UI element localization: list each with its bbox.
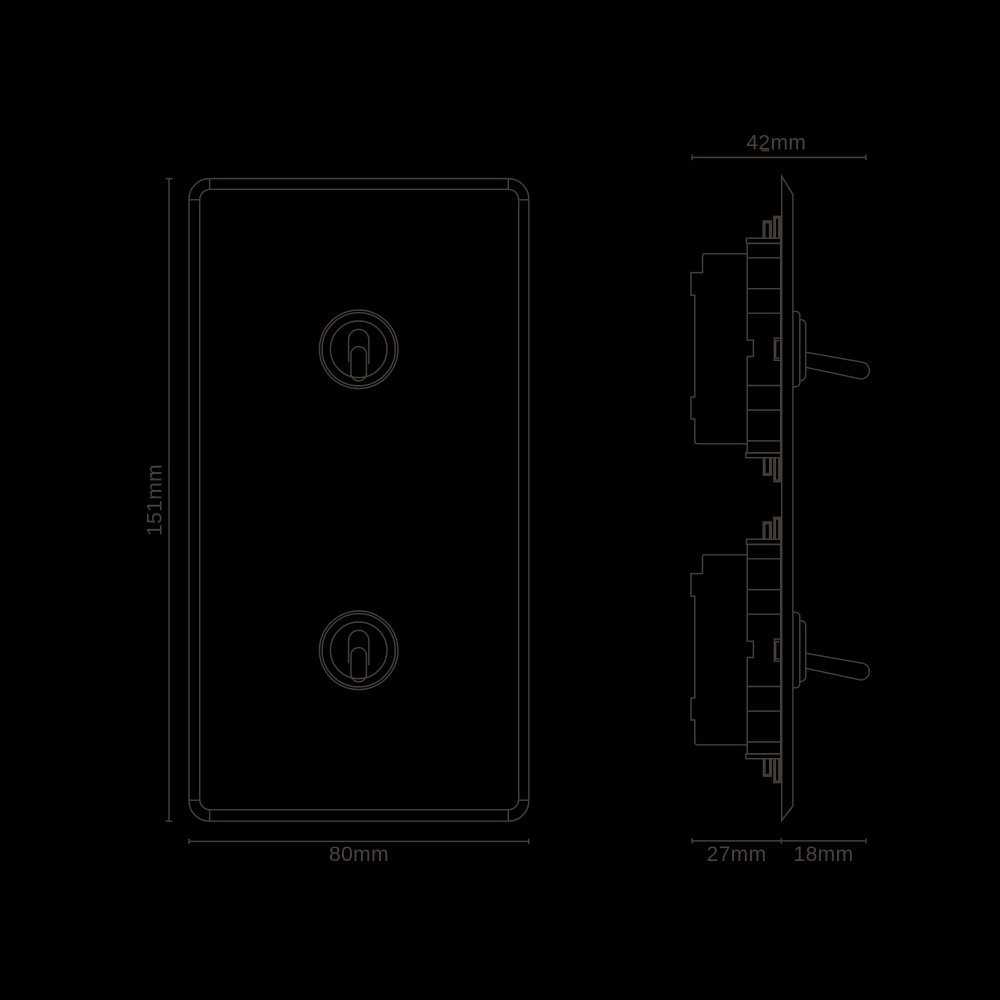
svg-text:27mm: 27mm: [707, 843, 767, 866]
svg-text:151mm: 151mm: [143, 464, 166, 536]
svg-text:42mm: 42mm: [746, 132, 806, 155]
svg-text:18mm: 18mm: [794, 843, 854, 866]
svg-text:80mm: 80mm: [329, 843, 389, 866]
